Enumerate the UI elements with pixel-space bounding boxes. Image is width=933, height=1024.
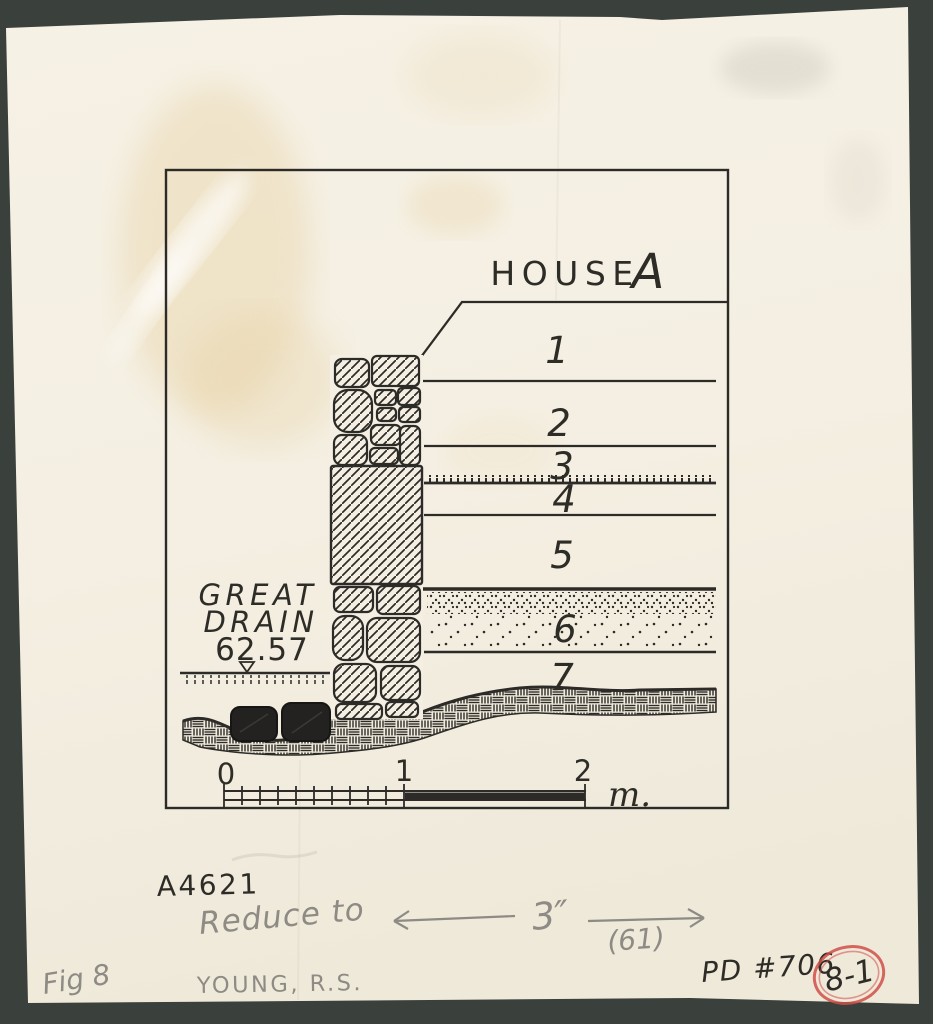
layer-number-4: 4 (552, 478, 576, 521)
scale-zero-label: 0 (217, 757, 235, 791)
scanned-archival-photo: HOUSE A 1 2 3 4 5 6 7 GREAT DRAIN 62.57 (0, 0, 933, 1024)
scale-unit-label: m. (608, 775, 651, 815)
layer-number-1: 1 (545, 329, 569, 372)
author-label: YOUNG, R.S. (196, 970, 364, 999)
wall-masonry (330, 355, 423, 719)
house-title-word: HOUSE (490, 254, 639, 293)
negative-number-label: A4621 (156, 867, 260, 903)
scale-one-label: 1 (395, 754, 413, 788)
layer-number-5: 5 (550, 534, 574, 577)
layer-number-6: 6 (553, 608, 577, 651)
wall-solid-block (331, 466, 422, 584)
layer-number-7: 7 (550, 656, 574, 699)
drain-elevation-value: 62.57 (215, 632, 309, 668)
house-title-letter: A (629, 244, 665, 300)
layer-number-2: 2 (547, 402, 571, 445)
scale-two-label: 2 (574, 754, 592, 788)
section-drawing: HOUSE A 1 2 3 4 5 6 7 GREAT DRAIN 62.57 (0, 0, 933, 1024)
target-width-label: 3″ (529, 892, 571, 939)
edition-note-label: (61) (606, 921, 666, 958)
